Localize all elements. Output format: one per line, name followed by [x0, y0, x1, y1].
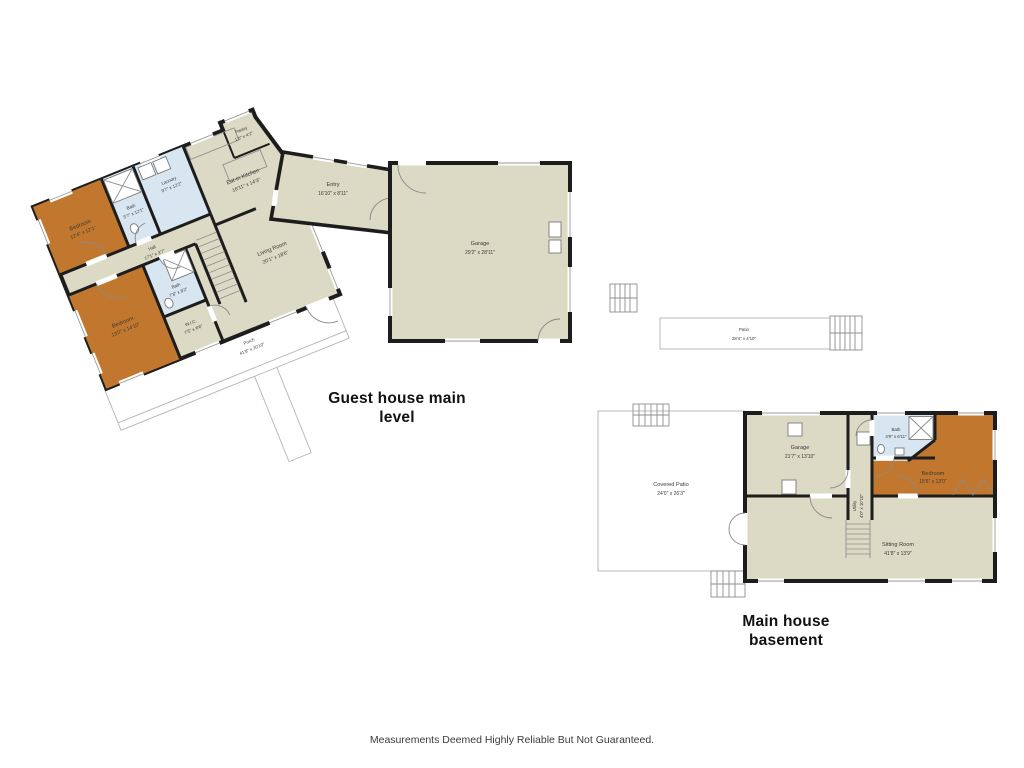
- floor-plan-canvas: Bedroom 12'4" x 12'1" Bath 5'7" x 12'1" …: [0, 0, 1024, 768]
- room-label: Entry: [326, 182, 339, 188]
- basement-equipment3-icon: [857, 432, 870, 445]
- main-house-title: Main house basement: [676, 612, 896, 650]
- guest-garage-plan: Garage 29'2" x 28'11": [390, 163, 570, 341]
- patio-stairs: [830, 316, 862, 350]
- patio-bottom-stairs: [711, 571, 745, 597]
- room-dims: 15'6" x 13'0": [919, 479, 947, 485]
- room-dims: 28'4" x 4'10": [732, 336, 757, 341]
- basement-equipment-icon: [788, 423, 802, 436]
- basement-toilet-icon: [878, 445, 885, 454]
- room-dims: 29'2" x 28'11": [465, 250, 495, 256]
- water-heater-icon: [549, 222, 561, 237]
- main-house-title-line1: Main house: [676, 612, 896, 631]
- room-label: Covered Patio: [653, 482, 688, 488]
- deck-stairs: [610, 284, 637, 312]
- patio-plan: Patio 28'4" x 4'10": [660, 316, 862, 350]
- equipment-icon: [549, 240, 561, 253]
- room-label: Patio: [739, 327, 750, 332]
- room-dims: 24'0" x 26'3": [657, 491, 685, 497]
- room-label: Garage: [471, 241, 490, 247]
- room-dims: 4'9" x 6'11": [885, 434, 907, 439]
- room-label: Utility: [852, 500, 857, 512]
- room-label: Bedroom: [922, 471, 945, 477]
- guest-house-title: Guest house main level: [287, 389, 507, 427]
- room-label: Garage: [791, 445, 810, 451]
- room-dims: 41'8" x 13'9": [884, 551, 912, 557]
- basement-sink-icon: [895, 448, 904, 455]
- patio-top-stairs: [633, 404, 669, 426]
- patio-outline: [660, 318, 830, 349]
- main-house-title-line2: basement: [676, 631, 896, 650]
- room-label: Bath: [891, 427, 901, 432]
- room-dims: 16'10" x 8'11": [318, 191, 348, 197]
- entry-connector: Entry 16'10" x 8'11": [271, 152, 392, 233]
- room-label: Sitting Room: [882, 542, 914, 548]
- basement-equipment2-icon: [782, 480, 796, 494]
- guest-house-title-line2: level: [287, 408, 507, 427]
- measurement-disclaimer: Measurements Deemed Highly Reliable But …: [0, 734, 1024, 746]
- guest-house-title-line1: Guest house main: [287, 389, 507, 408]
- room-dims: 21'7" x 13'10": [785, 454, 815, 460]
- room-dims: 4'0" x 10'10": [859, 494, 864, 519]
- floor-plan-page: Bedroom 12'4" x 12'1" Bath 5'7" x 12'1" …: [0, 0, 1024, 768]
- main-house-plan: Covered Patio 24'0" x 26'3": [598, 404, 995, 597]
